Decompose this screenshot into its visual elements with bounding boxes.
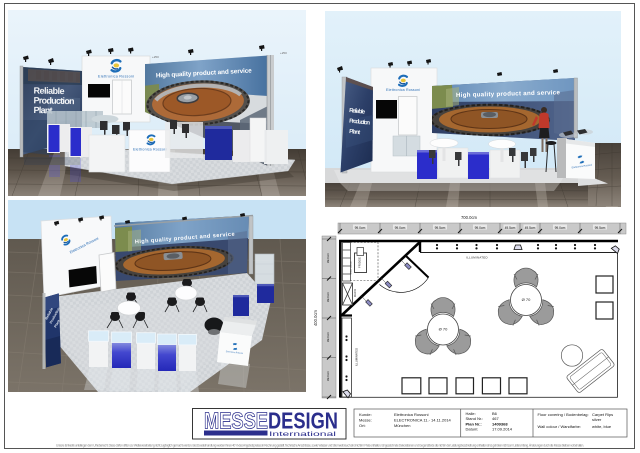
svg-text:ILLUMINATED: ILLUMINATED — [355, 348, 359, 366]
svg-text:DESIGN: DESIGN — [268, 408, 338, 434]
svg-text:Elettronica Rossoni: Elettronica Rossoni — [133, 148, 167, 152]
svg-text:+250: +250 — [152, 55, 159, 59]
svg-text:Elettronica Rossoni: Elettronica Rossoni — [394, 412, 429, 417]
svg-text:Elettronica Rossoni: Elettronica Rossoni — [386, 88, 420, 92]
svg-text:Ø 70: Ø 70 — [522, 297, 531, 302]
svg-text:ILLUMINATED: ILLUMINATED — [466, 256, 488, 260]
svg-text:99.0cm: 99.0cm — [355, 226, 366, 230]
svg-text:FRIDGE: FRIDGE — [358, 257, 362, 268]
svg-text:MESSE: MESSE — [204, 408, 268, 434]
svg-text:400.0cm: 400.0cm — [313, 309, 318, 326]
svg-text:+250: +250 — [280, 51, 287, 55]
svg-text:Wall colour / Wandfarbe:: Wall colour / Wandfarbe: — [538, 424, 582, 429]
svg-text:99.0cm: 99.0cm — [395, 226, 406, 230]
svg-text:Stand Nr.:: Stand Nr.: — [466, 416, 484, 421]
svg-text:Elettronica Rossoni: Elettronica Rossoni — [98, 75, 134, 79]
svg-text:Plant: Plant — [349, 129, 361, 136]
svg-text:Unsere Entwürfe unterliegen de: Unsere Entwürfe unterliegen dem Urheberr… — [56, 444, 584, 448]
svg-text:99.0cm: 99.0cm — [326, 253, 330, 264]
svg-text:99.0cm: 99.0cm — [326, 371, 330, 382]
svg-text:99.0cm: 99.0cm — [326, 292, 330, 303]
svg-text:99.0cm: 99.0cm — [326, 332, 330, 343]
svg-text:RACK: RACK — [353, 289, 357, 297]
svg-text:Floor covering / Bodenbelag:: Floor covering / Bodenbelag: — [538, 412, 589, 417]
svg-text:Kunde:: Kunde: — [359, 412, 372, 417]
svg-text:17.09.2014: 17.09.2014 — [492, 427, 513, 432]
svg-text:467: 467 — [492, 416, 499, 421]
svg-text:International: International — [269, 432, 336, 438]
svg-text:Ort:: Ort: — [359, 423, 366, 428]
svg-text:700.0cm: 700.0cm — [461, 215, 478, 220]
svg-text:99.5cm: 99.5cm — [435, 226, 446, 230]
svg-text:ELECTRONICA 11.- 14.11.2014: ELECTRONICA 11.- 14.11.2014 — [394, 418, 452, 423]
svg-text:SHELF 100X30: SHELF 100X30 — [351, 261, 353, 274]
svg-text:99.0cm: 99.0cm — [555, 226, 566, 230]
svg-text:München: München — [394, 423, 410, 428]
svg-text:49.5cm: 49.5cm — [505, 226, 516, 230]
svg-text:99.5cm: 99.5cm — [595, 226, 606, 230]
svg-text:silver: silver — [592, 417, 602, 422]
svg-text:49.5cm: 49.5cm — [525, 226, 536, 230]
svg-text:Ø 70: Ø 70 — [439, 327, 448, 332]
svg-text:99.0cm: 99.0cm — [475, 226, 486, 230]
svg-text:white, blue: white, blue — [592, 424, 612, 429]
svg-text:Datum:: Datum: — [466, 427, 479, 432]
svg-text:Messe:: Messe: — [359, 418, 372, 423]
